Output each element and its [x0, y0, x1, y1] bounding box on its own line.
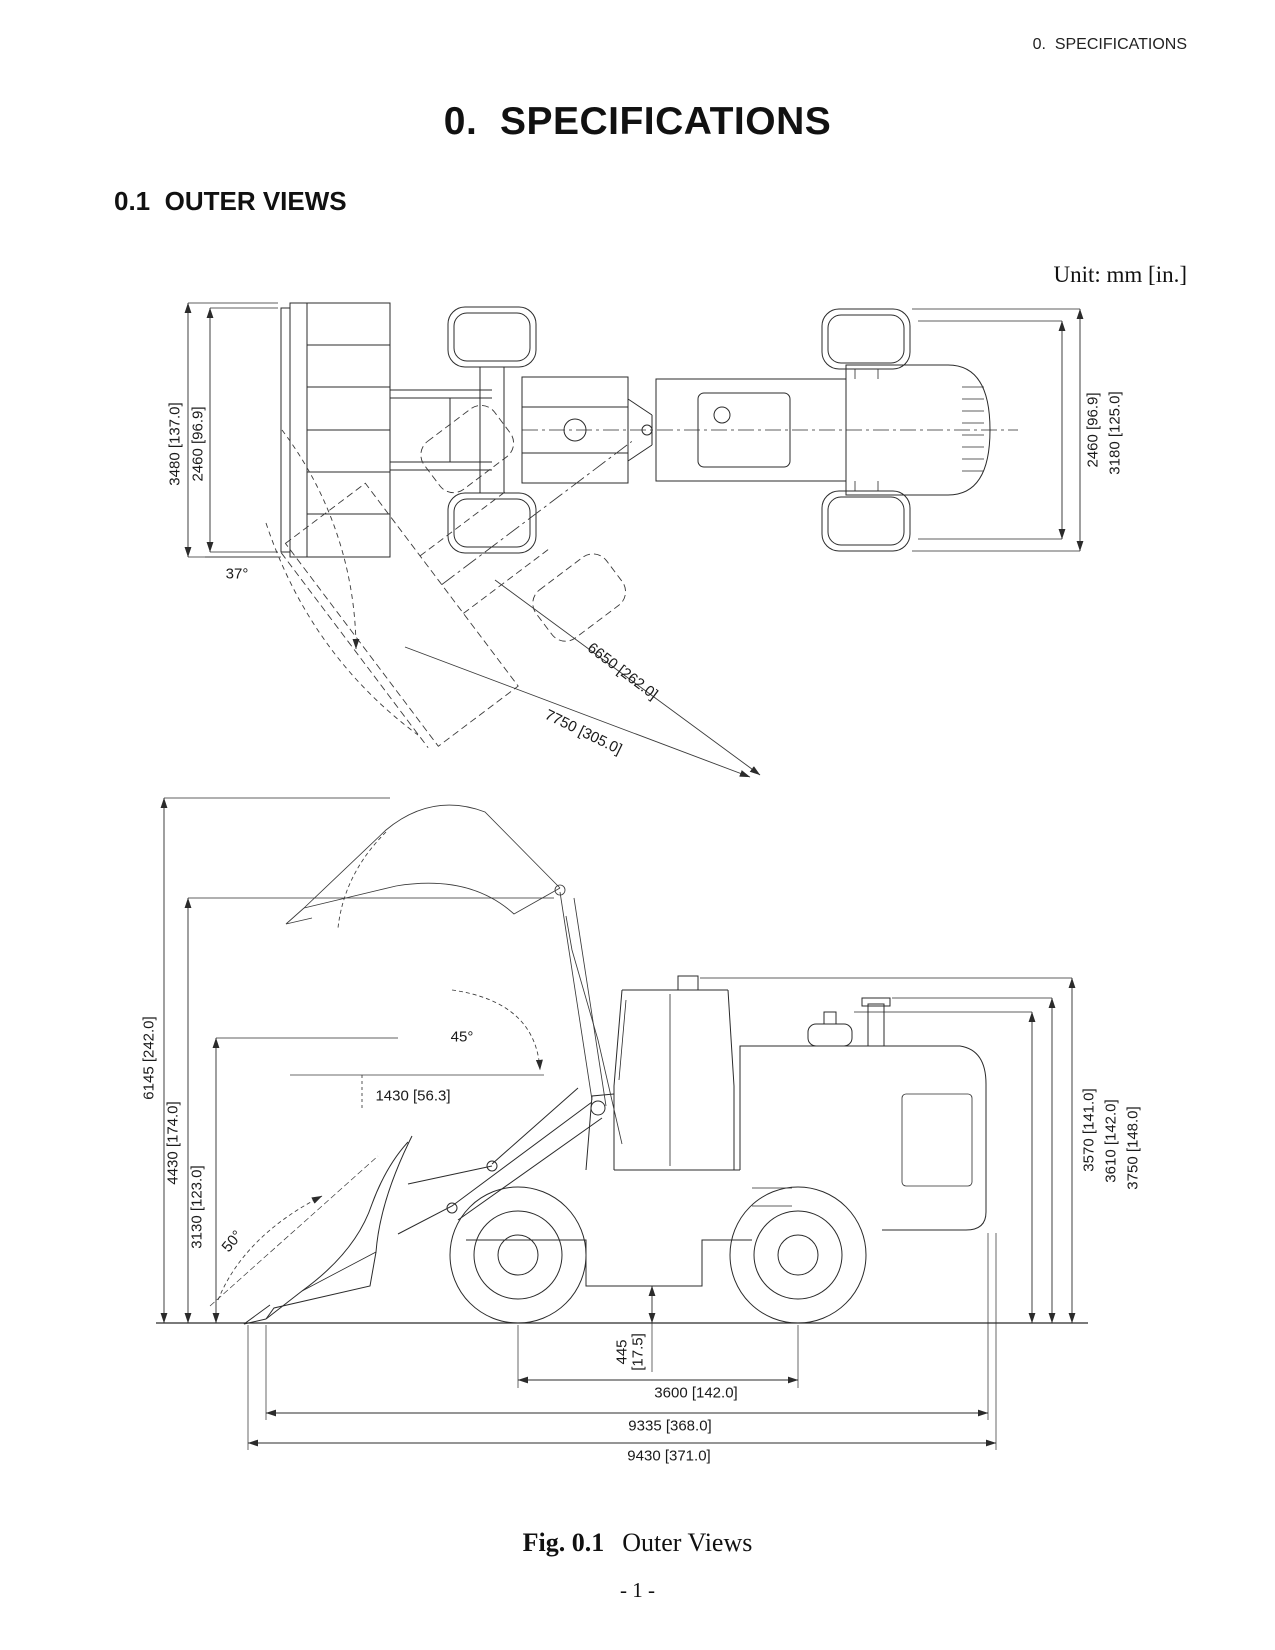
dim-label-ground-clearance: 445 [17.5] [581, 1333, 682, 1371]
dim-label-wheelbase: 3600 [142.0] [654, 1386, 737, 1403]
running-header: 0. SPECIFICATIONS [1033, 36, 1187, 54]
figure-caption-title: Outer Views [622, 1528, 752, 1557]
dim-label-dump-clearance: 3130 [123.0] [190, 1165, 207, 1248]
figure-caption-label: Fig. 0.1 [523, 1528, 605, 1557]
side-view-drawing [140, 788, 1100, 1488]
angle-label-steering: 37° [226, 567, 249, 584]
top-view-drawing [150, 295, 1110, 780]
dim-label-reach: 1430 [56.3] [375, 1089, 450, 1106]
dim-ground-clearance-in: [17.5] [631, 1333, 648, 1371]
page-number: - 1 - [0, 1578, 1275, 1603]
page-title: 0. SPECIFICATIONS [0, 100, 1275, 144]
dim-label-hinge-pin-height: 4430 [174.0] [166, 1101, 183, 1184]
dim-label-top-width-inner-right: 2460 [96.9] [1086, 392, 1103, 467]
dim-label-top-width-outer-right: 3180 [125.0] [1108, 391, 1125, 474]
manual-page: 0. SPECIFICATIONS 0. SPECIFICATIONS 0.1 … [0, 0, 1275, 1650]
section-heading: 0.1 OUTER VIEWS [114, 186, 347, 217]
unit-note: Unit: mm [in.] [1053, 262, 1187, 288]
dim-label-height-2: 3610 [142.0] [1104, 1099, 1121, 1182]
dim-label-height-max: 6145 [242.0] [142, 1016, 159, 1099]
dim-label-top-width-outer-left: 3480 [137.0] [168, 402, 185, 485]
dim-label-top-width-inner-left: 2460 [96.9] [191, 406, 208, 481]
dim-label-length-2: 9430 [371.0] [627, 1449, 710, 1466]
dim-label-height-1: 3570 [141.0] [1082, 1088, 1099, 1171]
dim-label-height-3: 3750 [148.0] [1126, 1106, 1143, 1189]
dim-label-length-1: 9335 [368.0] [628, 1419, 711, 1436]
figure-caption: Fig. 0.1Outer Views [0, 1528, 1275, 1558]
dim-ground-clearance-mm: 445 [614, 1339, 631, 1364]
angle-label-dump: 45° [451, 1030, 474, 1047]
